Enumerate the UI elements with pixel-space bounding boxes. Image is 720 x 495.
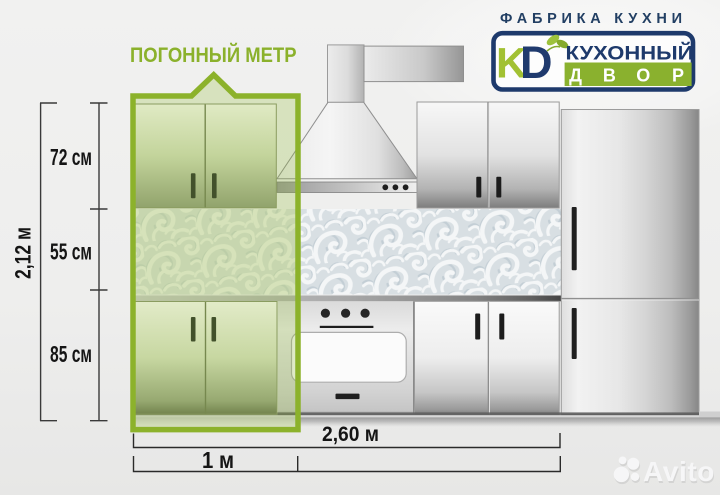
svg-text:ПОГОННЫЙ МЕТР: ПОГОННЫЙ МЕТР — [130, 42, 297, 67]
svg-text:Avito: Avito — [643, 456, 715, 487]
svg-text:Д: Д — [569, 66, 582, 86]
svg-text:Р: Р — [672, 66, 684, 86]
svg-text:72 см: 72 см — [50, 144, 92, 170]
svg-text:О: О — [636, 66, 650, 86]
svg-text:1 м: 1 м — [202, 447, 234, 473]
svg-text:КУХОННЫЙ: КУХОННЫЙ — [566, 41, 694, 65]
svg-text:В: В — [603, 66, 616, 86]
svg-text:85 см: 85 см — [50, 341, 92, 367]
svg-text:55 см: 55 см — [50, 239, 92, 265]
svg-text:2,60 м: 2,60 м — [322, 422, 379, 446]
svg-text:2,12 м: 2,12 м — [11, 227, 36, 279]
